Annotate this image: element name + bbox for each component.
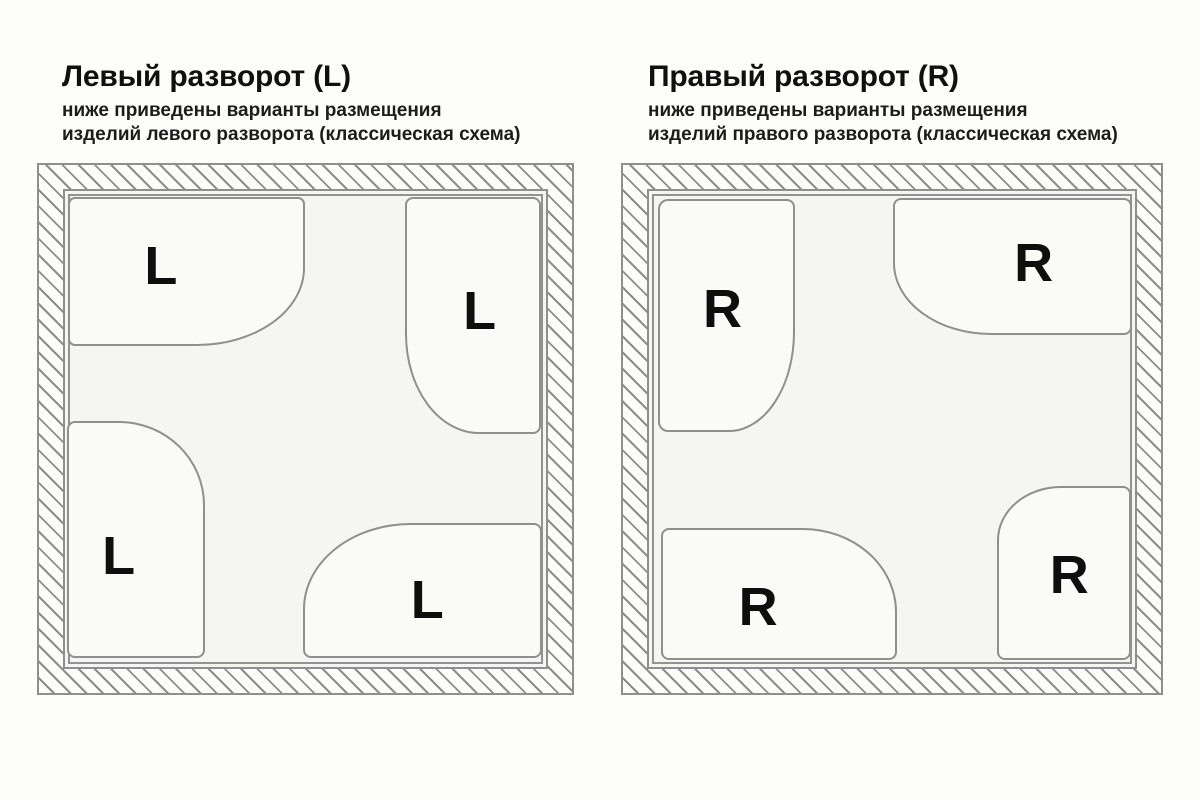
panel-right-heading: Правый разворот (R) ниже приведены вариа… (648, 60, 1188, 146)
left-subtitle-line2: изделий левого разворота (классическая с… (62, 124, 521, 145)
left-panel-title: Левый разворот (L) (62, 60, 602, 94)
tray-label: L (463, 284, 496, 338)
tray-left-bottom-left: L (67, 421, 205, 658)
tray-left-top-right: L (405, 197, 541, 434)
layout-diagram: Левый разворот (L) ниже приведены вариан… (0, 0, 1200, 800)
right-subtitle-line1: ниже приведены варианты размещения (648, 100, 1028, 121)
tray-right-bottom-right: R (997, 486, 1131, 660)
tray-left-top-left: L (68, 197, 305, 346)
tray-right-top-right: R (893, 198, 1132, 335)
tray-label: L (411, 573, 444, 627)
left-panel-subtitle: ниже приведены варианты размещения издел… (62, 99, 602, 146)
tray-label: R (1050, 548, 1089, 602)
tray-label: L (144, 239, 177, 293)
tray-right-top-left: R (658, 199, 795, 432)
room-plan-left: L L L L (37, 163, 574, 695)
room-left-interior: L L L L (63, 189, 548, 669)
panel-left-heading: Левый разворот (L) ниже приведены вариан… (62, 60, 602, 146)
room-right-interior: R R R R (647, 189, 1137, 669)
right-panel-title: Правый разворот (R) (648, 60, 1188, 94)
tray-right-bottom-left: R (661, 528, 897, 660)
tray-label: R (739, 580, 778, 634)
left-subtitle-line1: ниже приведены варианты размещения (62, 100, 442, 121)
tray-label: R (1014, 236, 1053, 290)
tray-label: R (703, 282, 742, 336)
right-panel-subtitle: ниже приведены варианты размещения издел… (648, 99, 1188, 146)
room-plan-right: R R R R (621, 163, 1163, 695)
right-subtitle-line2: изделий правого разворота (классическая … (648, 124, 1118, 145)
tray-left-bottom-right: L (303, 523, 542, 658)
tray-label: L (102, 529, 135, 583)
